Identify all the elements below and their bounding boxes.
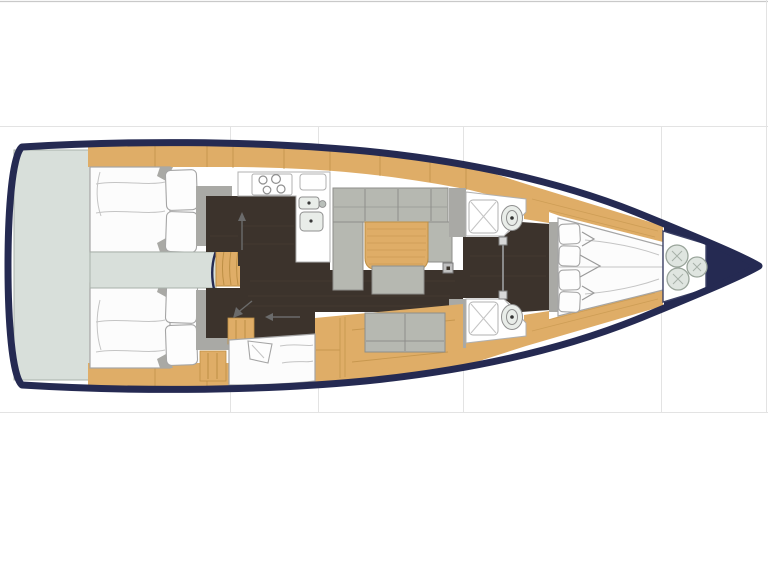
pillow xyxy=(165,324,197,365)
engine-box xyxy=(90,252,216,288)
aft-cabin-port xyxy=(90,167,198,253)
floor-area xyxy=(238,196,296,266)
bed-mattress xyxy=(90,167,170,252)
drain-icon xyxy=(307,201,310,204)
bed-mattress xyxy=(229,334,315,385)
floor-area xyxy=(206,196,240,252)
drain-icon xyxy=(309,219,312,222)
counter-hatch xyxy=(300,174,326,190)
pillow xyxy=(248,341,272,363)
pillow xyxy=(165,282,197,323)
companionway xyxy=(90,250,256,289)
post-base xyxy=(499,237,507,245)
head-starboard xyxy=(466,299,526,343)
head-port xyxy=(466,192,526,236)
aft-cabin-starboard xyxy=(90,282,198,368)
mid-berth xyxy=(229,334,315,385)
swim-platform-deck xyxy=(14,150,90,380)
swim-platform xyxy=(14,150,90,380)
settee-arm-right xyxy=(428,222,452,262)
bulkhead xyxy=(449,188,466,237)
pillow xyxy=(558,223,580,244)
partition xyxy=(196,216,206,246)
toilet-drain-icon xyxy=(510,216,514,220)
pillow xyxy=(559,246,581,267)
toilet-drain-icon xyxy=(510,315,514,319)
mast-step-core xyxy=(447,267,451,271)
partition xyxy=(196,290,206,320)
pillow xyxy=(165,169,197,210)
floor-wood-block xyxy=(200,351,226,381)
faucet-icon xyxy=(319,201,326,208)
bed-mattress xyxy=(90,283,170,368)
headboard xyxy=(549,222,558,312)
pillow xyxy=(558,291,580,312)
floorplan-svg xyxy=(0,0,768,576)
boat-floorplan-image xyxy=(0,0,768,576)
pillow xyxy=(559,270,581,291)
settee-arm-left xyxy=(333,222,363,290)
pillow xyxy=(165,211,197,252)
bench-seat xyxy=(372,266,424,294)
post-base xyxy=(499,291,507,299)
